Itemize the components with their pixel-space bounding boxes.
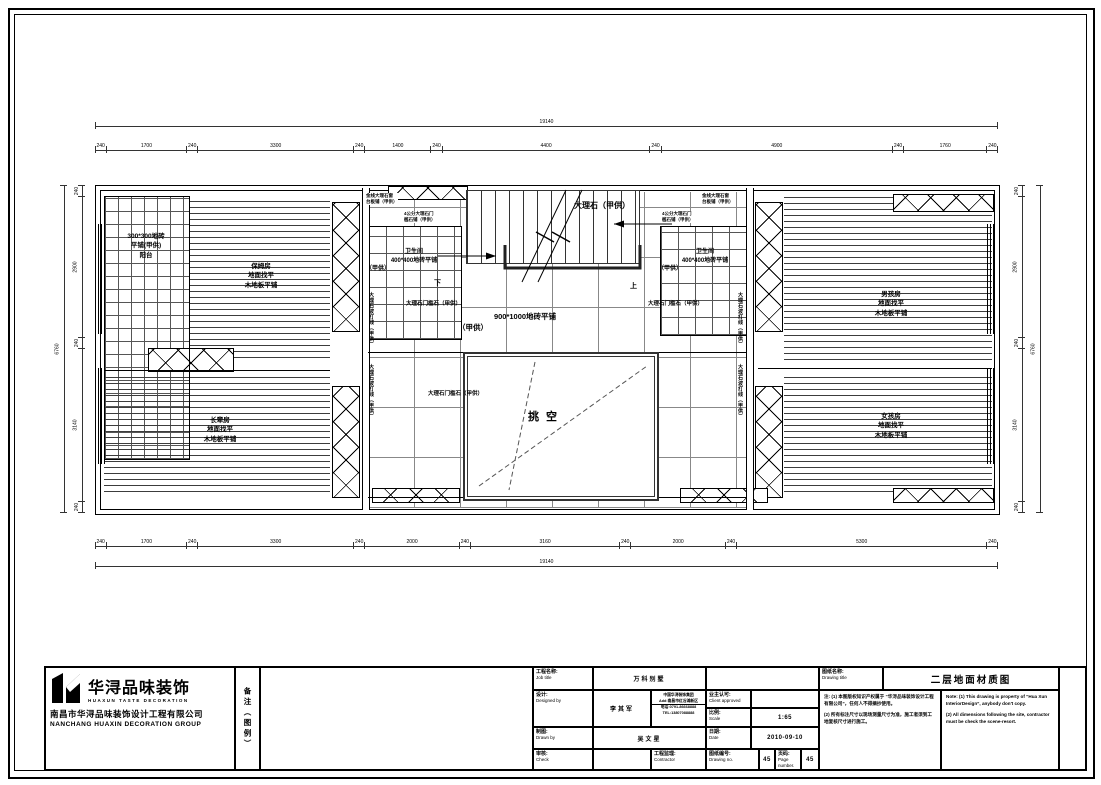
dimension-number: 240 <box>96 539 104 545</box>
dimension-segment: 240 <box>187 140 198 151</box>
contractor-label: 工程监理:Contractor <box>651 749 706 770</box>
dimension-segment: 240 <box>354 536 365 547</box>
threshold-label-3: 大理石门槛石（甲供） <box>428 389 483 397</box>
dimension-segment: 1760 <box>904 140 987 151</box>
dimension-segment: 1700 <box>106 536 186 547</box>
dimension-segment: 4400 <box>442 140 650 151</box>
column-mid-left <box>148 348 234 372</box>
dimension-left-overall: 6760 <box>54 185 64 513</box>
dimension-segment: 2900 <box>1012 197 1023 338</box>
notes-english: Note: (1) This drawing is property of “H… <box>941 690 1059 770</box>
dimension-number: 240 <box>355 143 363 149</box>
dimension-number: 240 <box>1014 187 1020 195</box>
client-approved-value <box>751 690 819 708</box>
room-label-nanny: 保姆房地面找平木地板平铺 <box>196 262 326 290</box>
void-inner-border <box>467 356 655 497</box>
dimension-bottom-overall: 19140 <box>95 556 998 566</box>
room-label-bath-left: 卫生间400*400地砖平铺（甲供） <box>366 248 462 274</box>
dimension-segment: 2900 <box>72 197 83 338</box>
page-number-label: 页码:Page number. <box>775 749 801 770</box>
dimension-right-overall: 6760 <box>1030 185 1040 513</box>
dimension-number: 240 <box>894 143 902 149</box>
stair-marble-label: 大理石（甲供） <box>574 200 630 211</box>
brand-name: 华浔品味装饰 <box>88 674 190 698</box>
dimension-number: 3160 <box>540 539 551 545</box>
dimension-number: 19140 <box>540 119 554 125</box>
dimension-segment: 3160 <box>471 536 620 547</box>
dimension-segment: 240 <box>987 140 998 151</box>
floor-plan: 300*300地砖平铺(甲供)阳台 保姆房地面找平木地板平铺 长辈房地面找平木地… <box>0 0 1101 660</box>
dimension-number: 2900 <box>1012 261 1018 272</box>
column-right-bottom <box>755 386 783 498</box>
dimension-number: 5300 <box>856 539 867 545</box>
dimension-number: 240 <box>651 143 659 149</box>
window-box-bottom-center <box>680 488 768 503</box>
stair-up-label: 上 <box>630 281 637 291</box>
dimension-number: 240 <box>621 539 629 545</box>
dimension-number: 3140 <box>1012 420 1018 431</box>
dimension-number: 240 <box>188 143 196 149</box>
dimension-number: 240 <box>74 339 80 347</box>
void-label: 挑空 <box>528 408 564 424</box>
dimension-bottom-chain: 2401700240330024020002403160240200024053… <box>95 536 998 546</box>
dimension-number: 240 <box>461 539 469 545</box>
dimension-segment: 240 <box>1012 501 1023 513</box>
job-title-spacer <box>706 667 819 690</box>
dimension-number: 240 <box>988 143 996 149</box>
dimension-segment: 240 <box>95 140 106 151</box>
room-label-boy: 男孩房地面找平木地板平铺 <box>826 290 956 318</box>
dimension-segment: 1700 <box>106 140 186 151</box>
company-block: 华浔品味装饰 HUAXUN TASTE DECORATION 南昌市华浔品味装饰… <box>45 667 235 770</box>
dimension-left-chain: 24029002403140240 <box>72 185 82 513</box>
dimension-number: 2000 <box>673 539 684 545</box>
check-value <box>593 749 651 770</box>
threshold-label-2: 大理石门槛石（甲供） <box>648 299 703 307</box>
dimension-top-chain: 2401700240330024014002404400240490024017… <box>95 140 998 150</box>
room-label-balcony: 300*300地砖平铺(甲供)阳台 <box>100 232 192 260</box>
designed-by-value: 李其军 <box>593 690 651 727</box>
dimension-segment: 3140 <box>72 349 83 501</box>
staircase-arrows <box>430 184 680 304</box>
dimension-number: 240 <box>432 143 440 149</box>
window-strip-left-bottom <box>98 368 106 464</box>
dimension-number: 2000 <box>406 539 417 545</box>
dimension-segment: 240 <box>72 337 83 349</box>
dimension-number: 240 <box>96 143 104 149</box>
date-value: 2010-09-10 <box>751 727 819 749</box>
window-box-bottom-left <box>372 488 460 503</box>
dimension-segment: 1400 <box>365 140 431 151</box>
title-block-end-cell <box>1059 667 1086 770</box>
room-label-girl: 女孩房地面找平木地板平铺 <box>826 412 956 440</box>
company-contact: 中国华浔装饰集团 Add:南昌市红谷滩新区 电话:0791-86668888 T… <box>651 690 706 727</box>
stair-down-label: 下 <box>434 278 441 288</box>
dimension-number: 240 <box>727 539 735 545</box>
notes-chinese: 注: (1) 本图版权知识产权属于 “华浔品味装饰设计工程有限公司”，任何人不得… <box>819 690 941 770</box>
dimension-number: 240 <box>1014 339 1020 347</box>
dimension-segment: 240 <box>95 536 106 547</box>
dimension-segment: 240 <box>72 501 83 513</box>
dimension-number: 240 <box>74 503 80 511</box>
dimension-number: 4400 <box>540 143 551 149</box>
room-label-elder: 长辈房地面找平木地板平铺 <box>150 416 290 444</box>
dimension-segment: 3300 <box>198 140 354 151</box>
wall-corridor-right <box>746 188 754 510</box>
threshold-small-left: 4公分大理石门槛石铺（甲供） <box>404 211 436 223</box>
dimension-segment: 3300 <box>198 536 354 547</box>
dimension-number: 2900 <box>72 261 78 272</box>
company-name-cn: 南昌市华浔品味装饰设计工程有限公司 <box>50 708 230 720</box>
drawing-sheet: 300*300地砖平铺(甲供)阳台 保姆房地面找平木地板平铺 长辈房地面找平木地… <box>0 0 1101 785</box>
dimension-number: 1700 <box>141 143 152 149</box>
dimension-number: 3300 <box>270 539 281 545</box>
sill-label-right: 金线大理石窗台板铺（甲供） <box>702 193 734 205</box>
dimension-segment: 240 <box>1012 185 1023 197</box>
dimension-number: 6760 <box>1030 343 1036 354</box>
company-logo-icon <box>50 671 84 705</box>
dimension-segment: 240 <box>72 185 83 197</box>
designed-by-label: 设计:Designed by <box>533 690 593 727</box>
window-box-bottom-right <box>893 488 994 503</box>
job-title-value: 万科别墅 <box>593 667 706 690</box>
check-label: 审核:Check <box>533 749 593 770</box>
dimension-right-chain: 24029002403140240 <box>1012 185 1022 513</box>
company-name-en: NANCHANG HUAXIN DECORATION GROUP <box>50 721 230 728</box>
dimension-number: 1400 <box>392 143 403 149</box>
line-void-right-bottom <box>655 497 746 498</box>
dimension-segment: 240 <box>650 140 661 151</box>
dimension-segment: 240 <box>1012 337 1023 349</box>
sill-label-left: 金线大理石窗台板铺（甲供） <box>366 193 398 205</box>
line-void-left-bottom <box>368 497 463 498</box>
drawing-no-value: 45 <box>759 749 775 770</box>
drawing-no-label: 图纸编号:Drawing no. <box>706 749 759 770</box>
dimension-number: 240 <box>988 539 996 545</box>
dimension-segment: 6760 <box>54 185 65 513</box>
dimension-segment: 4900 <box>661 140 892 151</box>
dimension-segment: 240 <box>725 536 736 547</box>
job-title-label: 工程名称:Job title <box>533 667 593 690</box>
threshold-small-right: 4公分大理石门槛石铺（甲供） <box>662 211 694 223</box>
dimension-top-overall: 19140 <box>95 116 998 126</box>
dimension-segment: 240 <box>620 536 631 547</box>
dimension-segment: 240 <box>459 536 470 547</box>
date-label: 日期:Date <box>706 727 751 749</box>
remark-vertical-text: 备注（图例） <box>242 687 253 750</box>
wave-line-label-3: 大理石波打线（甲供） <box>737 292 744 360</box>
dimension-number: 3140 <box>72 420 78 431</box>
dimension-number: 6760 <box>54 343 60 354</box>
drawn-by-value: 吴文星 <box>593 727 706 749</box>
dimension-number: 1700 <box>141 539 152 545</box>
dimension-segment: 240 <box>892 140 903 151</box>
dimension-number: 240 <box>188 539 196 545</box>
dimension-segment: 6760 <box>1030 185 1041 513</box>
client-approved-label: 业主认可:Client approved <box>706 690 751 708</box>
threshold-label-1: 大理石门槛石（甲供） <box>406 299 461 307</box>
window-strip-right-bottom <box>987 368 995 464</box>
scale-label: 比例:Scale <box>706 708 751 727</box>
dimension-segment: 19140 <box>95 556 998 567</box>
dimension-segment: 19140 <box>95 116 998 127</box>
wall-elder-top <box>104 370 330 371</box>
dimension-segment: 2000 <box>631 536 725 547</box>
legend-area <box>260 667 533 770</box>
room-label-bath-right: 卫生间400*400地砖平铺（甲供） <box>658 248 752 274</box>
dimension-number: 4900 <box>771 143 782 149</box>
dimension-segment: 240 <box>354 140 365 151</box>
title-block: 华浔品味装饰 HUAXUN TASTE DECORATION 南昌市华浔品味装饰… <box>44 666 1087 771</box>
dimension-number: 240 <box>1014 503 1020 511</box>
wave-line-label-4: 大理石波打线（甲供） <box>737 364 744 444</box>
brand-name-en: HUAXUN TASTE DECORATION <box>88 698 190 703</box>
window-box-top-right <box>893 194 994 212</box>
wall-boy-girl <box>758 368 992 369</box>
void-area <box>463 352 659 501</box>
dimension-number: 240 <box>74 187 80 195</box>
scale-value: 1:65 <box>751 708 819 727</box>
line-void-left <box>368 352 463 353</box>
drawing-title-value: 二层地面材质图 <box>883 667 1059 690</box>
dimension-segment: 240 <box>431 140 442 151</box>
dimension-number: 1760 <box>940 143 951 149</box>
page-number-value: 45 <box>801 749 819 770</box>
dimension-segment: 5300 <box>737 536 987 547</box>
room-label-corridor: 900*1000地砖平铺（甲供） <box>440 312 610 334</box>
dimension-segment: 3140 <box>1012 349 1023 501</box>
column-left-bottom <box>332 386 360 498</box>
column-left-top <box>332 202 360 332</box>
remark-column: 备注（图例） <box>235 667 260 770</box>
drawing-title-label: 图纸名称:Drawing title <box>819 667 883 690</box>
drawn-by-label: 制图:Drawn by <box>533 727 593 749</box>
dimension-segment: 240 <box>187 536 198 547</box>
wave-line-label-2: 大理石波打线（甲供） <box>368 364 375 444</box>
column-right-top <box>755 202 783 332</box>
dimension-segment: 240 <box>987 536 998 547</box>
dimension-number: 19140 <box>540 559 554 565</box>
dimension-number: 3300 <box>270 143 281 149</box>
dimension-number: 240 <box>355 539 363 545</box>
wave-line-label-1: 大理石波打线（甲供） <box>368 292 375 360</box>
line-void-right <box>655 352 746 353</box>
window-strip-right-top <box>987 224 995 334</box>
room-boy-hatch <box>784 196 992 360</box>
dimension-segment: 2000 <box>365 536 459 547</box>
